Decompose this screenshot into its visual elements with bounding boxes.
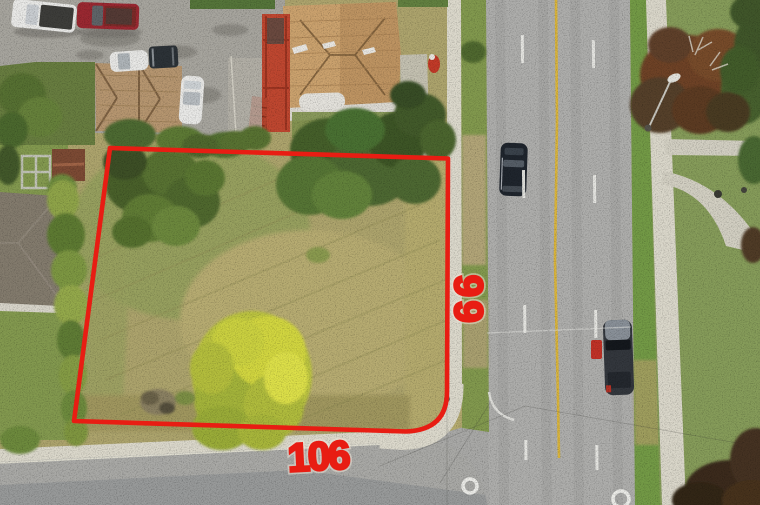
svg-text:99: 99 [446,275,490,327]
svg-text:106: 106 [287,433,351,480]
